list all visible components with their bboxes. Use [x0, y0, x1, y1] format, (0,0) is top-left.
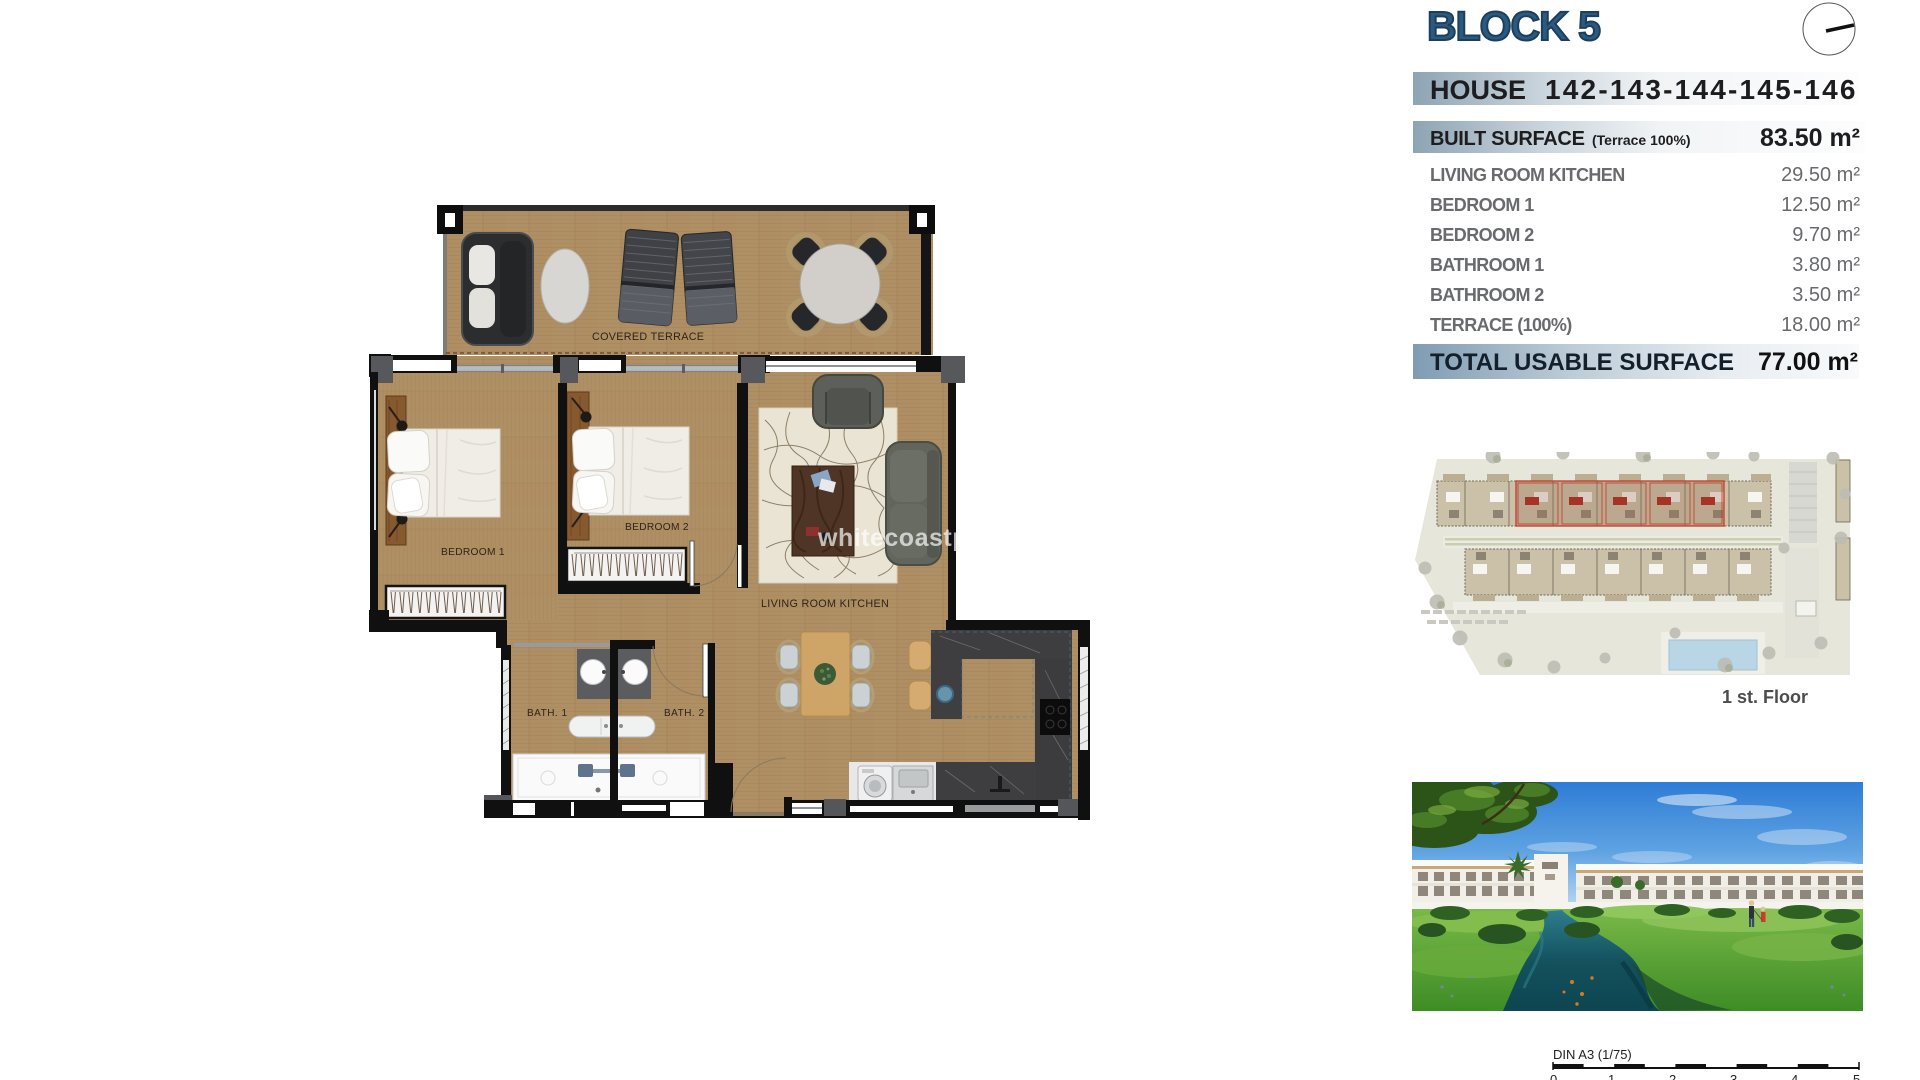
svg-text:2: 2 — [1669, 1072, 1676, 1080]
svg-text:3: 3 — [1730, 1072, 1737, 1080]
svg-text:5: 5 — [1853, 1072, 1860, 1080]
svg-text:1: 1 — [1608, 1072, 1615, 1080]
svg-text:1 st. Floor: 1 st. Floor — [1722, 687, 1808, 707]
svg-text:4: 4 — [1791, 1072, 1798, 1080]
svg-text:0: 0 — [1550, 1072, 1557, 1080]
